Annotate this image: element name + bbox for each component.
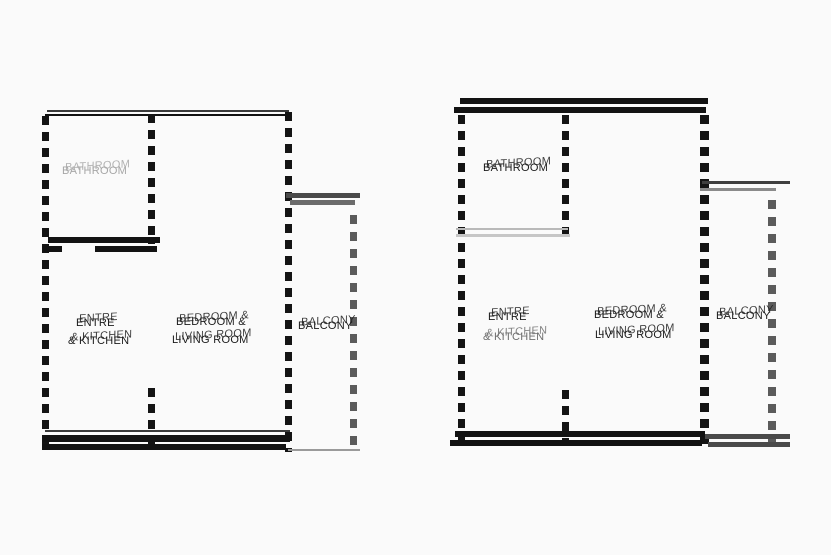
right-plan-bottom-wall-bar2	[450, 440, 702, 446]
right-plan-top-wall-bar2	[454, 107, 706, 113]
floor-plan-canvas: { "page": { "type": "architectural floor…	[0, 0, 831, 555]
left-plan-label-living-line2: LIVING ROOM LIVING ROOM	[172, 334, 249, 346]
left-plan-label-balcony: BALCONY BALCONY	[298, 320, 353, 332]
right-plan-label-bathroom: BATHROOM BATHROOM	[483, 162, 548, 174]
right-plan-label-kitchen-line2: & KITCHEN & KITCHEN	[483, 331, 544, 343]
right-plan-balcony-bottom-bar2	[708, 442, 790, 447]
left-plan-interior-wall-upper	[148, 114, 155, 244]
left-plan-balcony-top-bar2	[290, 200, 355, 205]
right-plan-bottom-wall-bar1	[455, 431, 705, 437]
left-plan-label-kitchen-line2: & KITCHEN & KITCHEN	[68, 335, 129, 347]
right-plan-label-kitchen-line1: ENTRE ENTRE	[488, 311, 527, 323]
right-plan-left-wall	[458, 115, 465, 445]
left-plan-label-kitchen-line1: ENTRE ENTRE	[76, 317, 115, 329]
kitchen-label-ghost: ENTRE	[491, 305, 530, 319]
left-plan: BATHROOM BATHROOM ENTRE ENTRE & KITCHEN …	[0, 0, 415, 555]
kitchen-label-ghost: ENTRE	[79, 311, 118, 325]
right-plan-balcony-bottom-bar1	[705, 434, 790, 439]
left-plan-balcony-right-wall	[350, 215, 357, 450]
right-plan-label-living-line2: LIVING ROOM LIVING ROOM	[595, 329, 672, 341]
left-plan-right-wall	[285, 112, 292, 452]
left-plan-top-wall-line1	[47, 110, 289, 112]
left-plan-bottom-wall-bar2	[42, 444, 286, 450]
left-plan-label-bathroom: BATHROOM BATHROOM	[62, 165, 127, 177]
right-plan-right-wall	[700, 115, 709, 445]
right-plan-balcony-right-wall	[768, 200, 776, 445]
left-plan-bathroom-wall-bar1	[48, 237, 160, 243]
left-plan-balcony-top-bar1	[286, 193, 360, 198]
right-plan-interior-wall-upper	[562, 115, 569, 241]
left-plan-bottom-wall-thin	[45, 430, 290, 432]
right-plan-label-balcony: BALCONY BALCONY	[716, 310, 771, 322]
right-plan-top-wall-bar1	[460, 98, 708, 104]
right-plan-label-living-line1: BEDROOM & BEDROOM &	[594, 309, 664, 321]
left-plan-bottom-wall-bar1	[42, 435, 290, 442]
right-plan-balcony-top-line2	[700, 188, 776, 191]
left-plan-bathroom-wall-bar2a	[42, 246, 62, 252]
right-plan-bathroom-wall-line1	[456, 228, 568, 230]
left-plan-top-wall-line2	[45, 114, 290, 116]
right-plan-bathroom-wall-line2	[456, 234, 570, 237]
right-plan: BATHROOM BATHROOM ENTRE ENTRE & KITCHEN …	[415, 0, 831, 555]
left-plan-left-wall	[42, 116, 49, 450]
right-plan-balcony-top-line1	[702, 181, 790, 184]
left-plan-bathroom-wall-bar2b	[95, 246, 157, 252]
left-plan-label-living-line1: BEDROOM & BEDROOM &	[176, 316, 246, 328]
left-plan-balcony-bottom-line	[288, 449, 360, 451]
